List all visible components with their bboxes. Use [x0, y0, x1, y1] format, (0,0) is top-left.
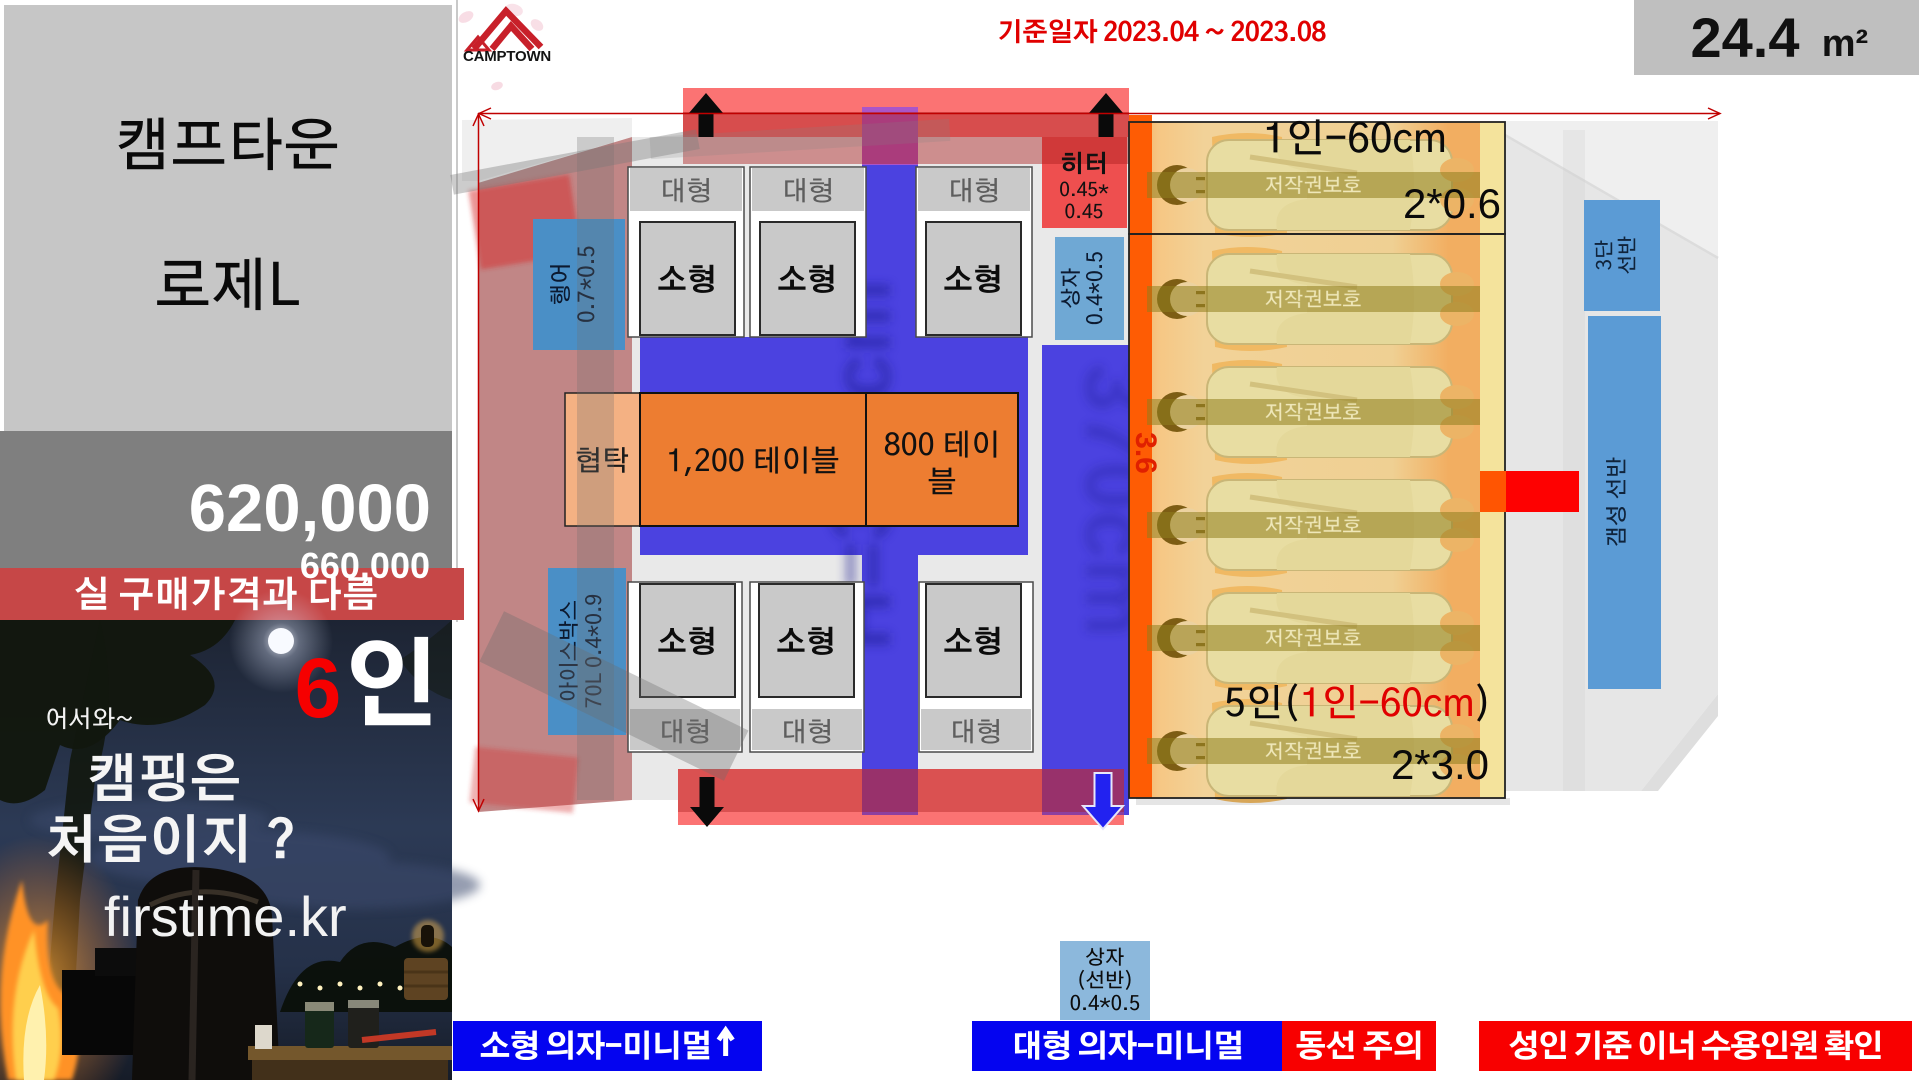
svg-text:2*0.6: 2*0.6 [1403, 180, 1501, 227]
svg-text:firstime.kr: firstime.kr [104, 885, 347, 948]
svg-text:660,000: 660,000 [300, 545, 430, 586]
svg-text:2*3.0: 2*3.0 [1391, 741, 1489, 788]
svg-text:6: 6 [295, 641, 342, 735]
svg-text:3.6: 3.6 [1129, 432, 1162, 474]
svg-text:m²: m² [1822, 23, 1868, 65]
svg-text:24.4: 24.4 [1691, 6, 1800, 69]
svg-text:CAMPTOWN: CAMPTOWN [463, 48, 551, 65]
svg-text:620,000: 620,000 [189, 471, 431, 546]
